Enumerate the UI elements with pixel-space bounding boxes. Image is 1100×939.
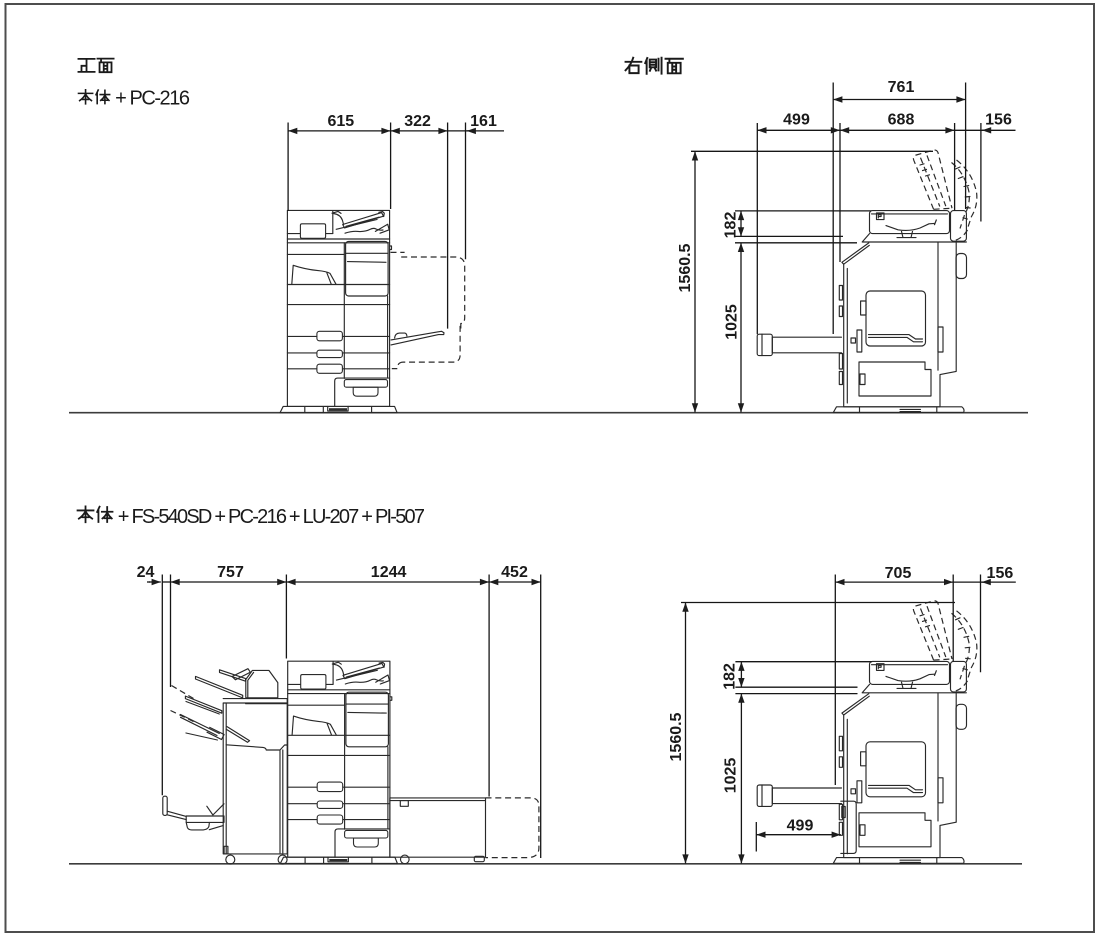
svg-text:+ PC-216: + PC-216: [111, 88, 190, 110]
svg-text:452: 452: [501, 564, 528, 581]
svg-text:156: 156: [985, 112, 1012, 129]
svg-text:761: 761: [888, 79, 915, 96]
svg-text:161: 161: [470, 113, 497, 130]
svg-text:499: 499: [783, 112, 810, 129]
svg-text:705: 705: [885, 565, 912, 582]
svg-text:182: 182: [722, 663, 739, 690]
svg-text:1025: 1025: [724, 304, 741, 340]
svg-text:757: 757: [217, 564, 244, 581]
svg-text:182: 182: [723, 212, 740, 239]
svg-text:1244: 1244: [371, 564, 407, 581]
svg-text:156: 156: [987, 565, 1014, 582]
svg-text:499: 499: [787, 818, 814, 835]
svg-text:615: 615: [327, 113, 354, 130]
svg-text:1560.5: 1560.5: [677, 243, 694, 292]
svg-text:1560.5: 1560.5: [668, 712, 685, 761]
svg-text:+ FS-540SD + PC-216 + LU-207 +: + FS-540SD + PC-216 + LU-207 + PI-507: [114, 506, 425, 528]
svg-text:1025: 1025: [722, 758, 739, 794]
svg-text:322: 322: [404, 113, 431, 130]
svg-text:688: 688: [888, 112, 915, 129]
svg-text:24: 24: [137, 564, 155, 581]
